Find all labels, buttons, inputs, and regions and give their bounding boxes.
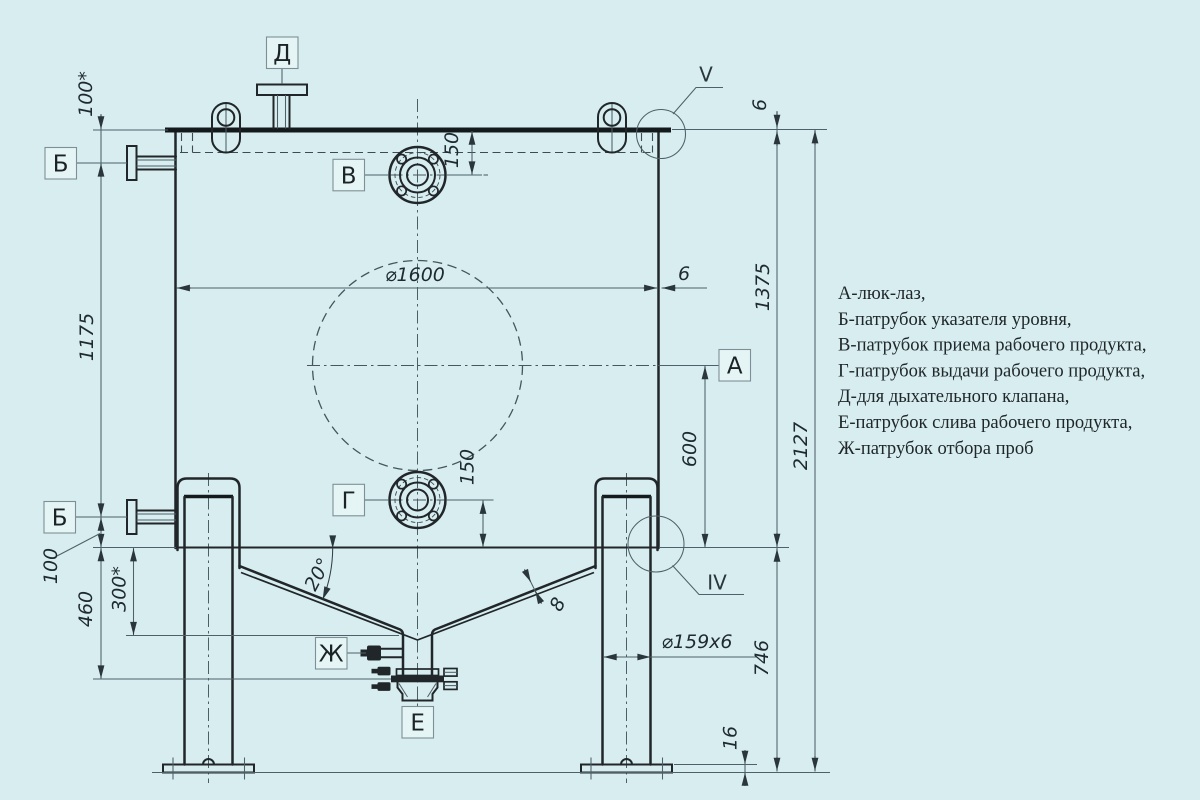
label-box-a: А xyxy=(719,350,751,382)
nozzle-zh-sampling xyxy=(361,646,404,661)
label-d: Д xyxy=(273,41,291,67)
view-iv-circle xyxy=(628,516,684,572)
label-box-zh: Ж xyxy=(316,638,348,670)
dim-746: 746 xyxy=(751,640,773,676)
view-v-label: V xyxy=(699,63,713,87)
tank-drawing-svg: V IV Д Б Б В Г А Ж Е 100* 1175 100 460 3… xyxy=(0,0,1200,800)
dim-6-top: 6 xyxy=(749,99,771,111)
legend-line-5: Д-для дыхательного клапана, xyxy=(838,386,1069,407)
nozzle-d-breather xyxy=(257,85,307,129)
dim-1375: 1375 xyxy=(752,263,774,311)
drawing-canvas: V IV Д Б Б В Г А Ж Е 100* 1175 100 460 3… xyxy=(0,0,1200,800)
label-box-b-upper: Б xyxy=(45,148,77,180)
dim-6-wall: 6 xyxy=(678,263,690,285)
legend: А-люк-лаз, Б-патрубок указателя уровня, … xyxy=(838,283,1147,459)
dim-16: 16 xyxy=(720,726,742,750)
dim-150-top: 150 xyxy=(441,132,463,168)
label-v: В xyxy=(341,163,357,189)
label-g: Г xyxy=(342,488,356,514)
dim-600: 600 xyxy=(679,431,701,467)
nozzle-b-upper xyxy=(127,146,176,180)
nozzle-b-lower xyxy=(127,500,176,534)
dim-460: 460 xyxy=(75,591,97,627)
dimension-texts: 100* 1175 100 460 300* 150 150 600 1375 … xyxy=(40,71,812,750)
label-b-upper: Б xyxy=(53,152,69,178)
label-box-v: В xyxy=(333,159,365,191)
legend-line-7: Ж-патрубок отбора проб xyxy=(838,438,1034,459)
dim-1600: ⌀1600 xyxy=(385,264,445,286)
dim-159x6: ⌀159х6 xyxy=(661,631,732,653)
label-a: А xyxy=(727,354,743,380)
label-box-b-lower: Б xyxy=(44,502,76,534)
legend-line-4: Г-патрубок выдачи рабочего продукта, xyxy=(838,360,1145,381)
dim-150-bottom: 150 xyxy=(457,449,479,485)
label-box-d: Д xyxy=(267,37,299,69)
legend-line-3: В-патрубок приема рабочего продукта, xyxy=(838,335,1147,356)
legend-line-2: Б-патрубок указателя уровня, xyxy=(838,309,1072,330)
dim-100: 100 xyxy=(40,548,62,584)
dim-8: 8 xyxy=(545,594,570,615)
label-zh: Ж xyxy=(319,642,344,668)
legend-line-1: А-люк-лаз, xyxy=(838,283,926,304)
dim-300-star: 300* xyxy=(109,566,131,612)
dim-1175: 1175 xyxy=(76,313,98,361)
extension-lines xyxy=(93,130,827,765)
label-box-g: Г xyxy=(333,484,365,516)
label-box-e: Е xyxy=(402,707,434,739)
dim-20deg: 20° xyxy=(300,554,335,594)
dimension-arrows xyxy=(101,112,815,786)
legend-line-6: Е-патрубок слива рабочего продукта, xyxy=(838,412,1132,433)
dim-2127: 2127 xyxy=(790,422,812,470)
drain-assembly-e xyxy=(372,667,458,701)
label-e: Е xyxy=(410,711,425,737)
view-iv-label: IV xyxy=(707,571,727,595)
view-v-circle xyxy=(637,110,686,159)
label-b-lower: Б xyxy=(52,506,68,532)
dim-100-star: 100* xyxy=(75,71,97,117)
